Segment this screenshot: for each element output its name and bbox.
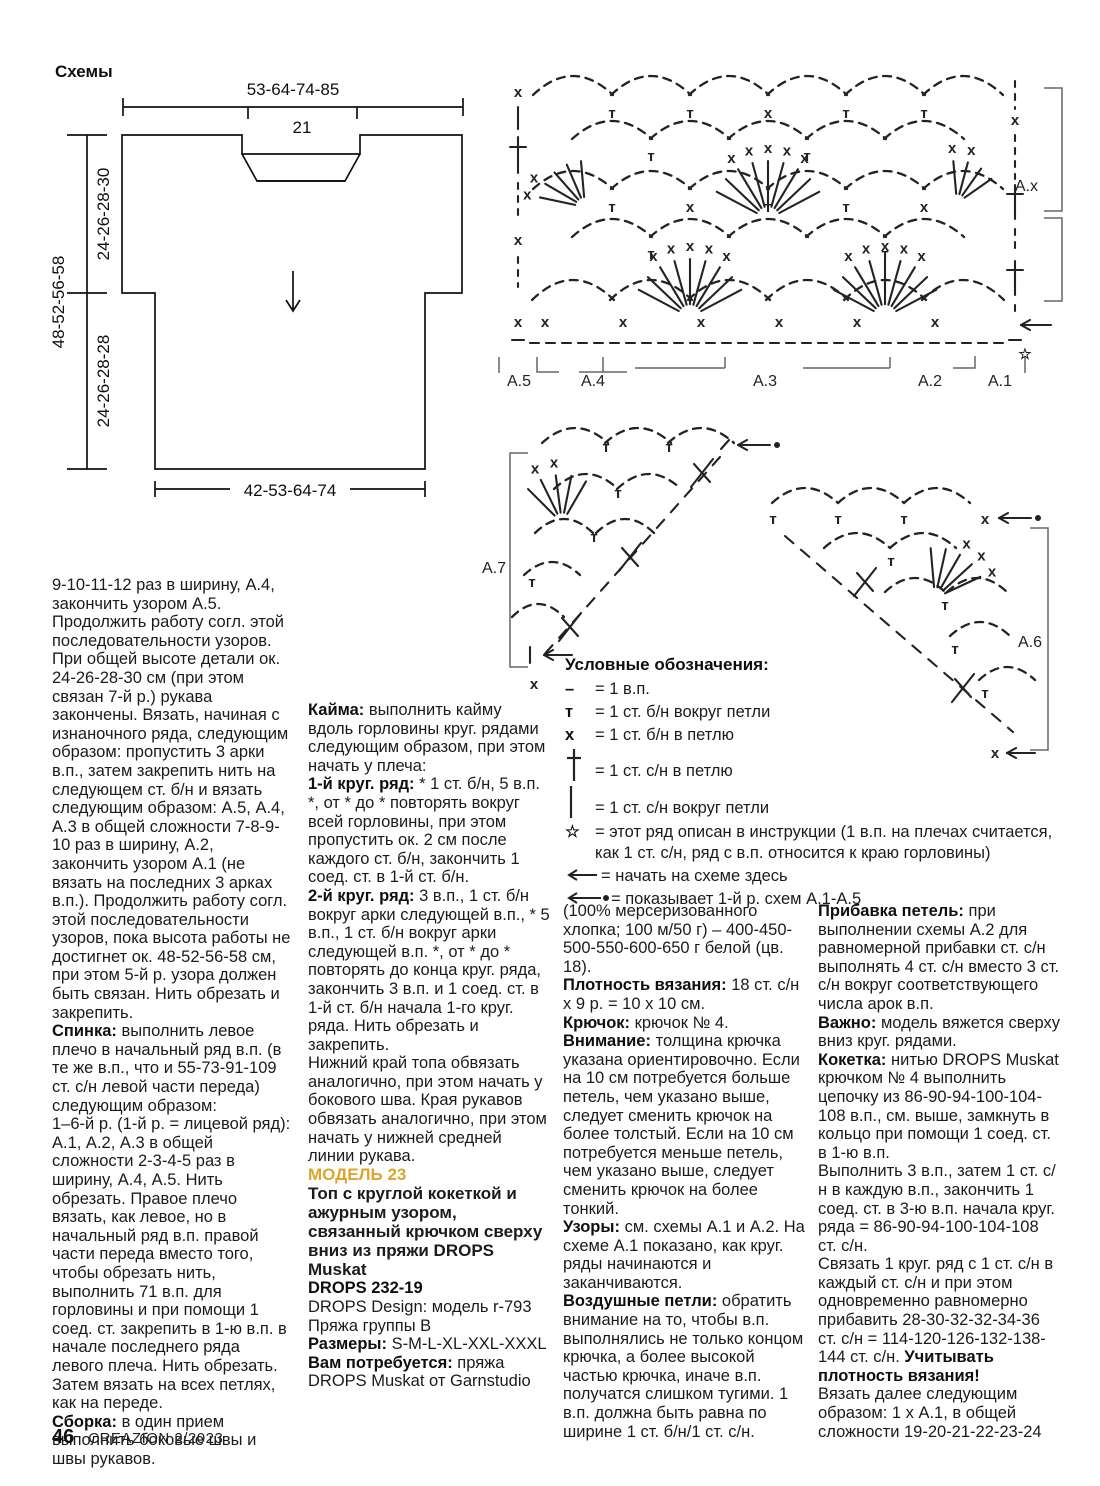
lead-hook: Крючок: [563,1014,630,1032]
text-column-3: (100% мерсеризованного хлопка; 100 м/50 … [563,902,805,1441]
design-code: DROPS 232-19 [308,1279,550,1298]
svg-text:x: x [917,248,926,265]
star-icon: ☆ [565,822,595,843]
paragraph: Вам потребуется: пряжа DROPS Muskat от G… [308,1354,550,1391]
svg-text:x: x [705,241,714,258]
svg-text:x: x [530,676,539,693]
paragraph: Важно: модель вяжется сверху вниз круг. … [818,1014,1060,1051]
svg-text:x: x [800,150,809,167]
svg-text:x: x [977,547,986,564]
paragraph: Связать 1 круг. ряд с 1 ст. с/н в каждый… [818,1255,1060,1385]
svg-text:т: т [920,105,927,122]
svg-text:x: x [523,187,532,204]
svg-text:x: x [988,563,997,580]
measure-total-height: 48-52-56-58 [49,256,68,349]
svg-text:x: x [844,248,853,265]
lead-sizes: Размеры: [308,1335,387,1353]
sc-in-stitch-icon: x [565,725,595,746]
paragraph: Размеры: S-M-L-XL-XXL-XXXL [308,1335,550,1354]
chart-label-a7: A.7 [482,560,506,577]
svg-text:т: т [647,148,654,165]
magazine-title: CREAZION 2/2023 [88,1430,223,1447]
legend-item-start-here: = начать на схеме здесь [565,866,1070,887]
legend-item-star: ☆ = этот ряд описан в инструкции (1 в.п.… [565,822,1070,864]
svg-text:x: x [667,241,676,258]
svg-text:x: x [900,241,909,258]
chart-label-a4: A.4 [581,373,605,390]
svg-text:т: т [590,529,597,546]
legend-item-dc-around: = 1 ст. с/н вокруг петли [565,785,1070,819]
lead-chain-stitches: Воздушные петли: [563,1292,717,1310]
svg-text:x: x [931,314,940,331]
svg-text:т: т [608,199,615,216]
chart-label-a5: A.5 [507,373,531,390]
svg-text:x: x [541,314,550,331]
svg-text:x: x [775,314,784,331]
measure-neck-width: 21 [293,118,312,137]
measure-body-height: 24-26-28-28 [94,335,113,428]
paragraph: Узоры: см. схемы А.1 и А.2. На схеме А.1… [563,1218,805,1292]
svg-text:т: т [834,511,841,528]
paragraph: Внимание: толщина крючка указана ориенти… [563,1032,805,1218]
text-column-1: 9-10-11-12 раз в ширину, А.4, закончить … [52,576,294,1469]
svg-text:т: т [941,597,948,614]
svg-text:x: x [514,232,523,249]
svg-text:x: x [981,511,990,528]
arrow-left-icon [565,867,601,881]
svg-text:т: т [900,511,907,528]
svg-text:x: x [764,140,773,157]
crochet-chart-main-art: ттxттттxxxxxxxxxтxттxттxxxxxxxxxxxxxxxxx… [499,76,1062,373]
page-footer: 46 CREAZION 2/2023 [52,1426,223,1449]
svg-text:x: x [783,143,792,160]
svg-text:т: т [602,439,609,456]
measure-yoke-height: 24-26-28-30 [94,168,113,261]
svg-text:x: x [948,140,957,157]
paragraph: (100% мерсеризованного хлопка; 100 м/50 … [563,902,805,976]
paragraph: Плотность вязания: 18 ст. с/н x 9 р. = 1… [563,976,805,1013]
chart-label-a6: A.6 [1018,634,1042,651]
legend-item-sc-around: т = 1 ст. б/н вокруг петли [565,702,1070,723]
lead-yoke: Кокетка: [818,1051,886,1069]
svg-text:x: x [853,314,862,331]
lead-you-need: Вам потребуется: [308,1354,453,1372]
legend: Условные обозначения: – = 1 в.п. т = 1 с… [565,655,1070,912]
design-line: Пряжа группы B [308,1317,550,1336]
chart-label-a1: A.1 [988,373,1012,390]
svg-text:x: x [531,460,540,477]
measure-bottom-width: 42-53-64-74 [244,481,337,500]
paragraph: Крючок: крючок № 4. [563,1014,805,1033]
svg-text:т: т [614,485,621,502]
dc-around-loop-icon [565,785,595,819]
model-heading: МОДЕЛЬ 23 [308,1166,550,1185]
page-number: 46 [52,1426,74,1449]
sc-around-loop-icon: т [565,702,595,723]
lead-gauge: Плотность вязания: [563,976,727,994]
svg-text:x: x [727,150,736,167]
svg-text:x: x [514,314,523,331]
paragraph: 1-й круг. ряд: * 1 ст. б/н, 5 в.п. *, от… [308,775,550,887]
chart-label-a3: A.3 [753,373,777,390]
svg-text:т: т [686,105,693,122]
paragraph: Нижний край топа обвязать аналогично, пр… [308,1054,550,1166]
svg-text:т: т [842,105,849,122]
svg-text:x: x [862,241,871,258]
svg-text:т: т [665,439,672,456]
svg-text:т: т [764,199,771,216]
lead-important: Важно: [818,1014,876,1032]
paragraph: Выполнить 3 в.п., затем 1 ст. с/н в кажд… [818,1162,1060,1255]
svg-text:т: т [528,574,535,591]
lead-round-1: 1-й круг. ряд: [308,775,415,793]
svg-text:x: x [1011,112,1020,129]
legend-item-chain: – = 1 в.п. [565,679,1070,700]
chain-dash-icon: – [565,679,595,700]
svg-text:т: т [842,199,849,216]
svg-text:x: x [550,455,559,472]
chart-label-a2: A.2 [918,373,942,390]
chart-label-ax: A.x [1015,178,1038,195]
text-column-4: Прибавка петель: при выполнении схемы А.… [818,902,1060,1441]
crochet-chart-a7-art: ттxxтттx [510,428,780,693]
paragraph: Кайма: выполнить кайму вдоль горловины к… [308,701,550,775]
paragraph: 1–6-й р. (1-й р. = лицевой ряд): А.1, А.… [52,1115,294,1413]
svg-text:x: x [745,143,754,160]
svg-text:x: x [686,238,695,255]
svg-text:x: x [722,248,731,265]
svg-text:x: x [649,248,658,265]
lead-border: Кайма: [308,701,364,719]
crochet-chart-main: ттxттттxxxxxxxxxтxттxттxxxxxxxxxxxxxxxxx… [485,55,1085,410]
paragraph: Вязать далее следующим образом: 1 x А.1,… [818,1385,1060,1441]
svg-text:т: т [887,553,894,570]
svg-text:x: x [764,105,773,122]
svg-text:x: x [962,535,971,552]
svg-text:x: x [881,238,890,255]
svg-text:x: x [514,84,523,101]
lead-patterns: Узоры: [563,1218,620,1236]
svg-text:x: x [920,199,929,216]
model-title: Топ с круглой кокеткой и ажурным узором,… [308,1184,550,1279]
svg-text:т: т [608,105,615,122]
garment-schematic: 53-64-74-85 21 42-53-64-74 48-52-56-58 2… [40,55,480,530]
svg-text:т: т [769,511,776,528]
dc-in-stitch-icon [565,748,595,782]
lead-attention: Внимание: [563,1032,651,1050]
lead-increases: Прибавка петель: [818,902,964,920]
paragraph: 2-й круг. ряд: 3 в.п., 1 ст. б/н вокруг … [308,887,550,1054]
lead-round-2: 2-й круг. ряд: [308,887,415,905]
paragraph: 9-10-11-12 раз в ширину, А.4, закончить … [52,576,294,1022]
paragraph: Прибавка петель: при выполнении схемы А.… [818,902,1060,1014]
design-line: DROPS Design: модель r-793 [308,1298,550,1317]
legend-item-sc-in: x = 1 ст. б/н в петлю [565,725,1070,746]
svg-text:x: x [697,314,706,331]
svg-text:x: x [967,142,976,159]
measure-top-width: 53-64-74-85 [247,80,340,99]
paragraph: Спинка: выполнить левое плечо в начальны… [52,1022,294,1115]
svg-text:x: x [686,199,695,216]
paragraph: Кокетка: нитью DROPS Muskat крючком № 4 … [818,1051,1060,1163]
lead-back: Спинка: [52,1022,117,1040]
garment-outline [122,135,462,469]
legend-title: Условные обозначения: [565,655,1070,675]
paragraph: Воздушные петли: обратить внимание на то… [563,1292,805,1441]
neckline [242,154,360,181]
legend-item-dc-in: = 1 ст. с/н в петлю [565,748,1070,782]
svg-text:x: x [619,314,628,331]
text-column-2: Кайма: выполнить кайму вдоль горловины к… [308,701,550,1391]
